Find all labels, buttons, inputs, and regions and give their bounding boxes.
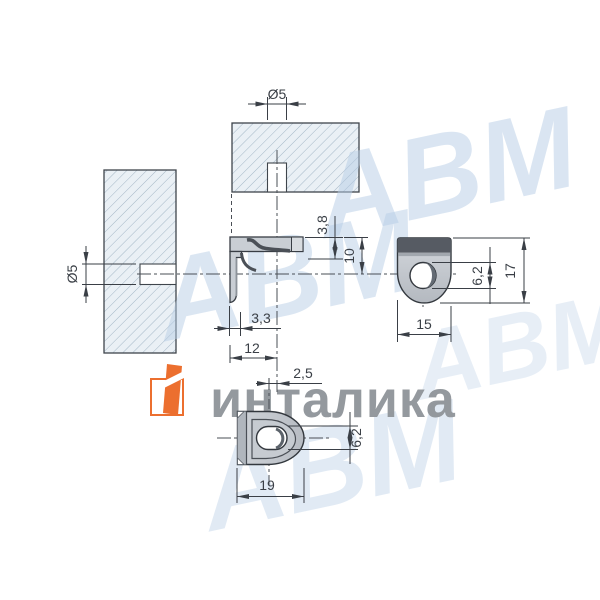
label-front-width: 15 — [416, 316, 432, 332]
label-edge-to-center: 12 — [244, 340, 260, 356]
bottom-view-part — [238, 412, 304, 465]
label-left-diameter: Ø5 — [64, 264, 80, 283]
front-view-top-band — [398, 238, 452, 253]
label-front-hole: 6,2 — [469, 266, 485, 286]
label-bottom-width: 19 — [259, 477, 275, 493]
watermark-text: АВМ — [141, 186, 429, 367]
technical-drawing-canvas: АВМ АВМ АВМ АВМ инталика — [0, 0, 600, 600]
front-view-part — [398, 238, 452, 303]
side-view-end-tab — [292, 238, 303, 251]
label-hole-offset: 2,5 — [293, 365, 313, 381]
label-bottom-hole: 6,2 — [348, 428, 364, 448]
bottom-view-flange-strip — [238, 412, 247, 465]
drawing-svg: АВМ АВМ АВМ АВМ инталика — [0, 0, 600, 600]
label-flange-thickness: 3,3 — [251, 310, 271, 326]
label-front-height: 17 — [502, 263, 518, 279]
label-top-to-center: 10 — [341, 248, 357, 264]
label-hook-depth: 3,8 — [314, 215, 330, 235]
label-top-diameter: Ø5 — [268, 86, 287, 102]
watermark-layer: АВМ АВМ АВМ АВМ — [141, 83, 600, 557]
